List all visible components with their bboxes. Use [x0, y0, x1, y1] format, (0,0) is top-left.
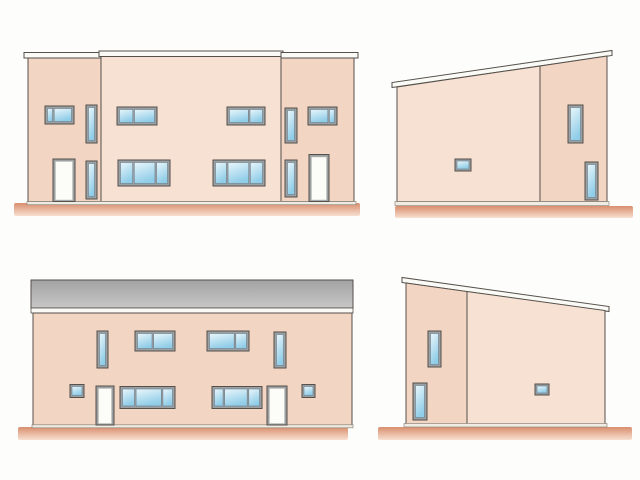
window-pane — [72, 387, 82, 396]
window-pane — [48, 109, 53, 122]
wall-main — [467, 292, 605, 425]
window-pane — [216, 163, 227, 184]
window-pane — [431, 334, 439, 365]
entry-door — [53, 159, 75, 202]
window-small — [535, 384, 549, 395]
window-pane — [304, 387, 313, 396]
right-side-elevation-monopitch — [392, 51, 633, 219]
window-upper — [135, 331, 175, 351]
window-pane — [571, 108, 581, 141]
door-panel — [312, 157, 327, 200]
window-pane — [210, 334, 235, 349]
window-pane — [215, 389, 224, 406]
window-pane — [163, 389, 173, 406]
window-lower — [118, 160, 170, 186]
door-panel — [99, 389, 112, 424]
window-pane — [230, 110, 249, 123]
window-vertical — [86, 105, 97, 143]
window-pane — [123, 389, 135, 406]
window-pane — [311, 110, 328, 123]
window-small — [302, 385, 315, 398]
window-pane — [134, 110, 154, 123]
roof-band-left — [24, 53, 102, 59]
window-vertical — [285, 108, 297, 143]
window-pane — [89, 164, 95, 197]
window-upper-right — [308, 107, 337, 125]
window-pane — [250, 163, 262, 184]
window-pane — [121, 163, 133, 184]
window-pane — [588, 165, 596, 198]
window-pane — [138, 334, 153, 349]
base-strip — [27, 202, 356, 205]
window-pane — [89, 108, 95, 141]
window-pane — [537, 386, 547, 393]
entry-door — [309, 155, 329, 202]
roof-slope-gray — [31, 280, 353, 308]
ground-strip — [18, 427, 348, 440]
window-lower — [213, 160, 265, 186]
elevation-drawing-sheet — [0, 0, 640, 480]
window-pane — [136, 389, 161, 406]
elevation-scene — [0, 0, 640, 480]
window-pane — [154, 334, 173, 349]
window-pane — [249, 389, 260, 406]
roof-band-right — [281, 53, 358, 59]
ground-strip — [378, 427, 632, 440]
door-panel — [270, 389, 285, 424]
window-vertical — [585, 162, 598, 200]
window-small — [70, 385, 84, 398]
wall-main — [397, 66, 540, 202]
window-pane — [54, 109, 71, 122]
window-pane — [134, 163, 155, 184]
window-pane — [225, 389, 248, 406]
window-pane — [288, 163, 295, 195]
roof-band-middle — [99, 51, 283, 57]
window-vertical — [97, 331, 108, 368]
window-vertical — [428, 331, 441, 367]
door-panel — [56, 162, 73, 201]
window-pane — [236, 334, 247, 349]
window-vertical — [86, 161, 97, 199]
window-vertical — [413, 383, 427, 420]
window-upper — [117, 107, 157, 125]
roof-fascia — [31, 308, 353, 313]
left-side-elevation-monopitch — [378, 278, 632, 441]
window-pane — [120, 110, 133, 123]
window-pane — [288, 111, 295, 141]
base-strip — [404, 424, 607, 428]
base-strip — [395, 202, 609, 206]
window-pane — [277, 335, 284, 366]
ground-strip — [395, 206, 633, 218]
window-vertical — [568, 105, 583, 143]
window-upper-left — [45, 106, 74, 124]
window-pane — [228, 163, 249, 184]
window-pane — [416, 386, 425, 418]
rear-elevation-two-story — [18, 280, 353, 440]
entry-door — [96, 386, 114, 425]
window-small — [455, 159, 471, 171]
window-upper — [227, 107, 265, 125]
window-upper — [207, 331, 249, 351]
window-vertical — [285, 160, 297, 197]
window-pane — [457, 161, 469, 169]
wall-main — [33, 313, 352, 425]
window-pane — [329, 110, 334, 123]
window-vertical — [274, 332, 286, 368]
window-pane — [100, 334, 106, 366]
window-lower — [212, 387, 262, 409]
base-strip — [32, 425, 353, 428]
window-pane — [250, 110, 263, 123]
front-elevation-two-story — [14, 51, 360, 216]
entry-door — [267, 386, 287, 425]
window-lower — [120, 387, 175, 409]
window-pane — [157, 163, 168, 184]
